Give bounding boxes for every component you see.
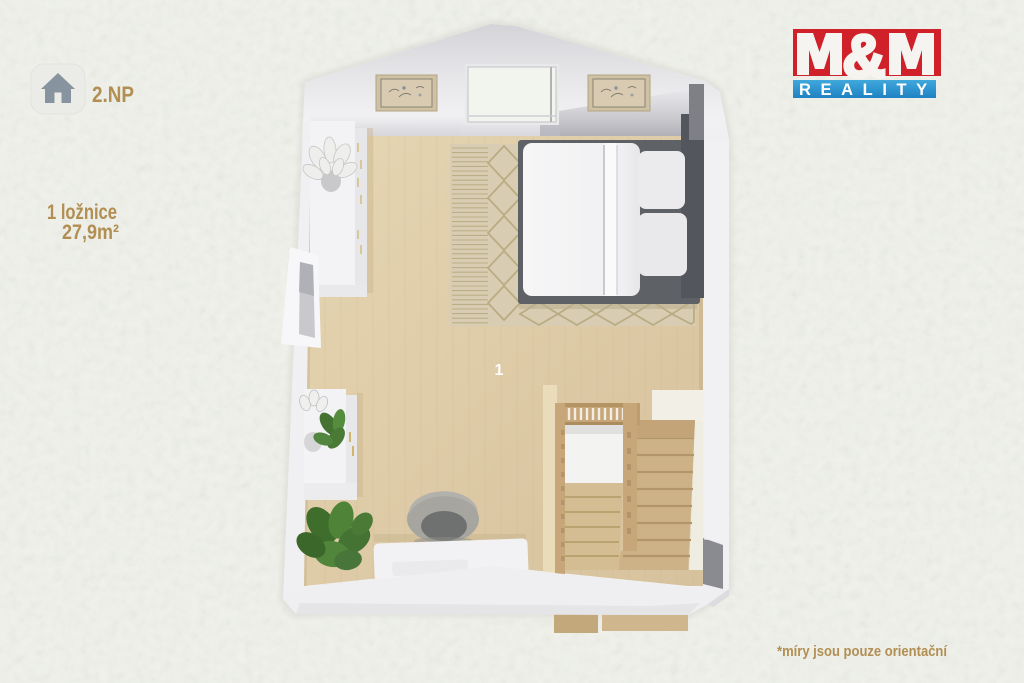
- svg-text:27,9m²: 27,9m²: [62, 221, 119, 244]
- svg-text:&: &: [842, 23, 885, 90]
- svg-text:REALITY: REALITY: [799, 81, 937, 99]
- svg-text:2.NP: 2.NP: [92, 82, 134, 107]
- svg-text:1: 1: [495, 362, 504, 379]
- svg-text:*míry jsou pouze orientační: *míry jsou pouze orientační: [777, 643, 948, 660]
